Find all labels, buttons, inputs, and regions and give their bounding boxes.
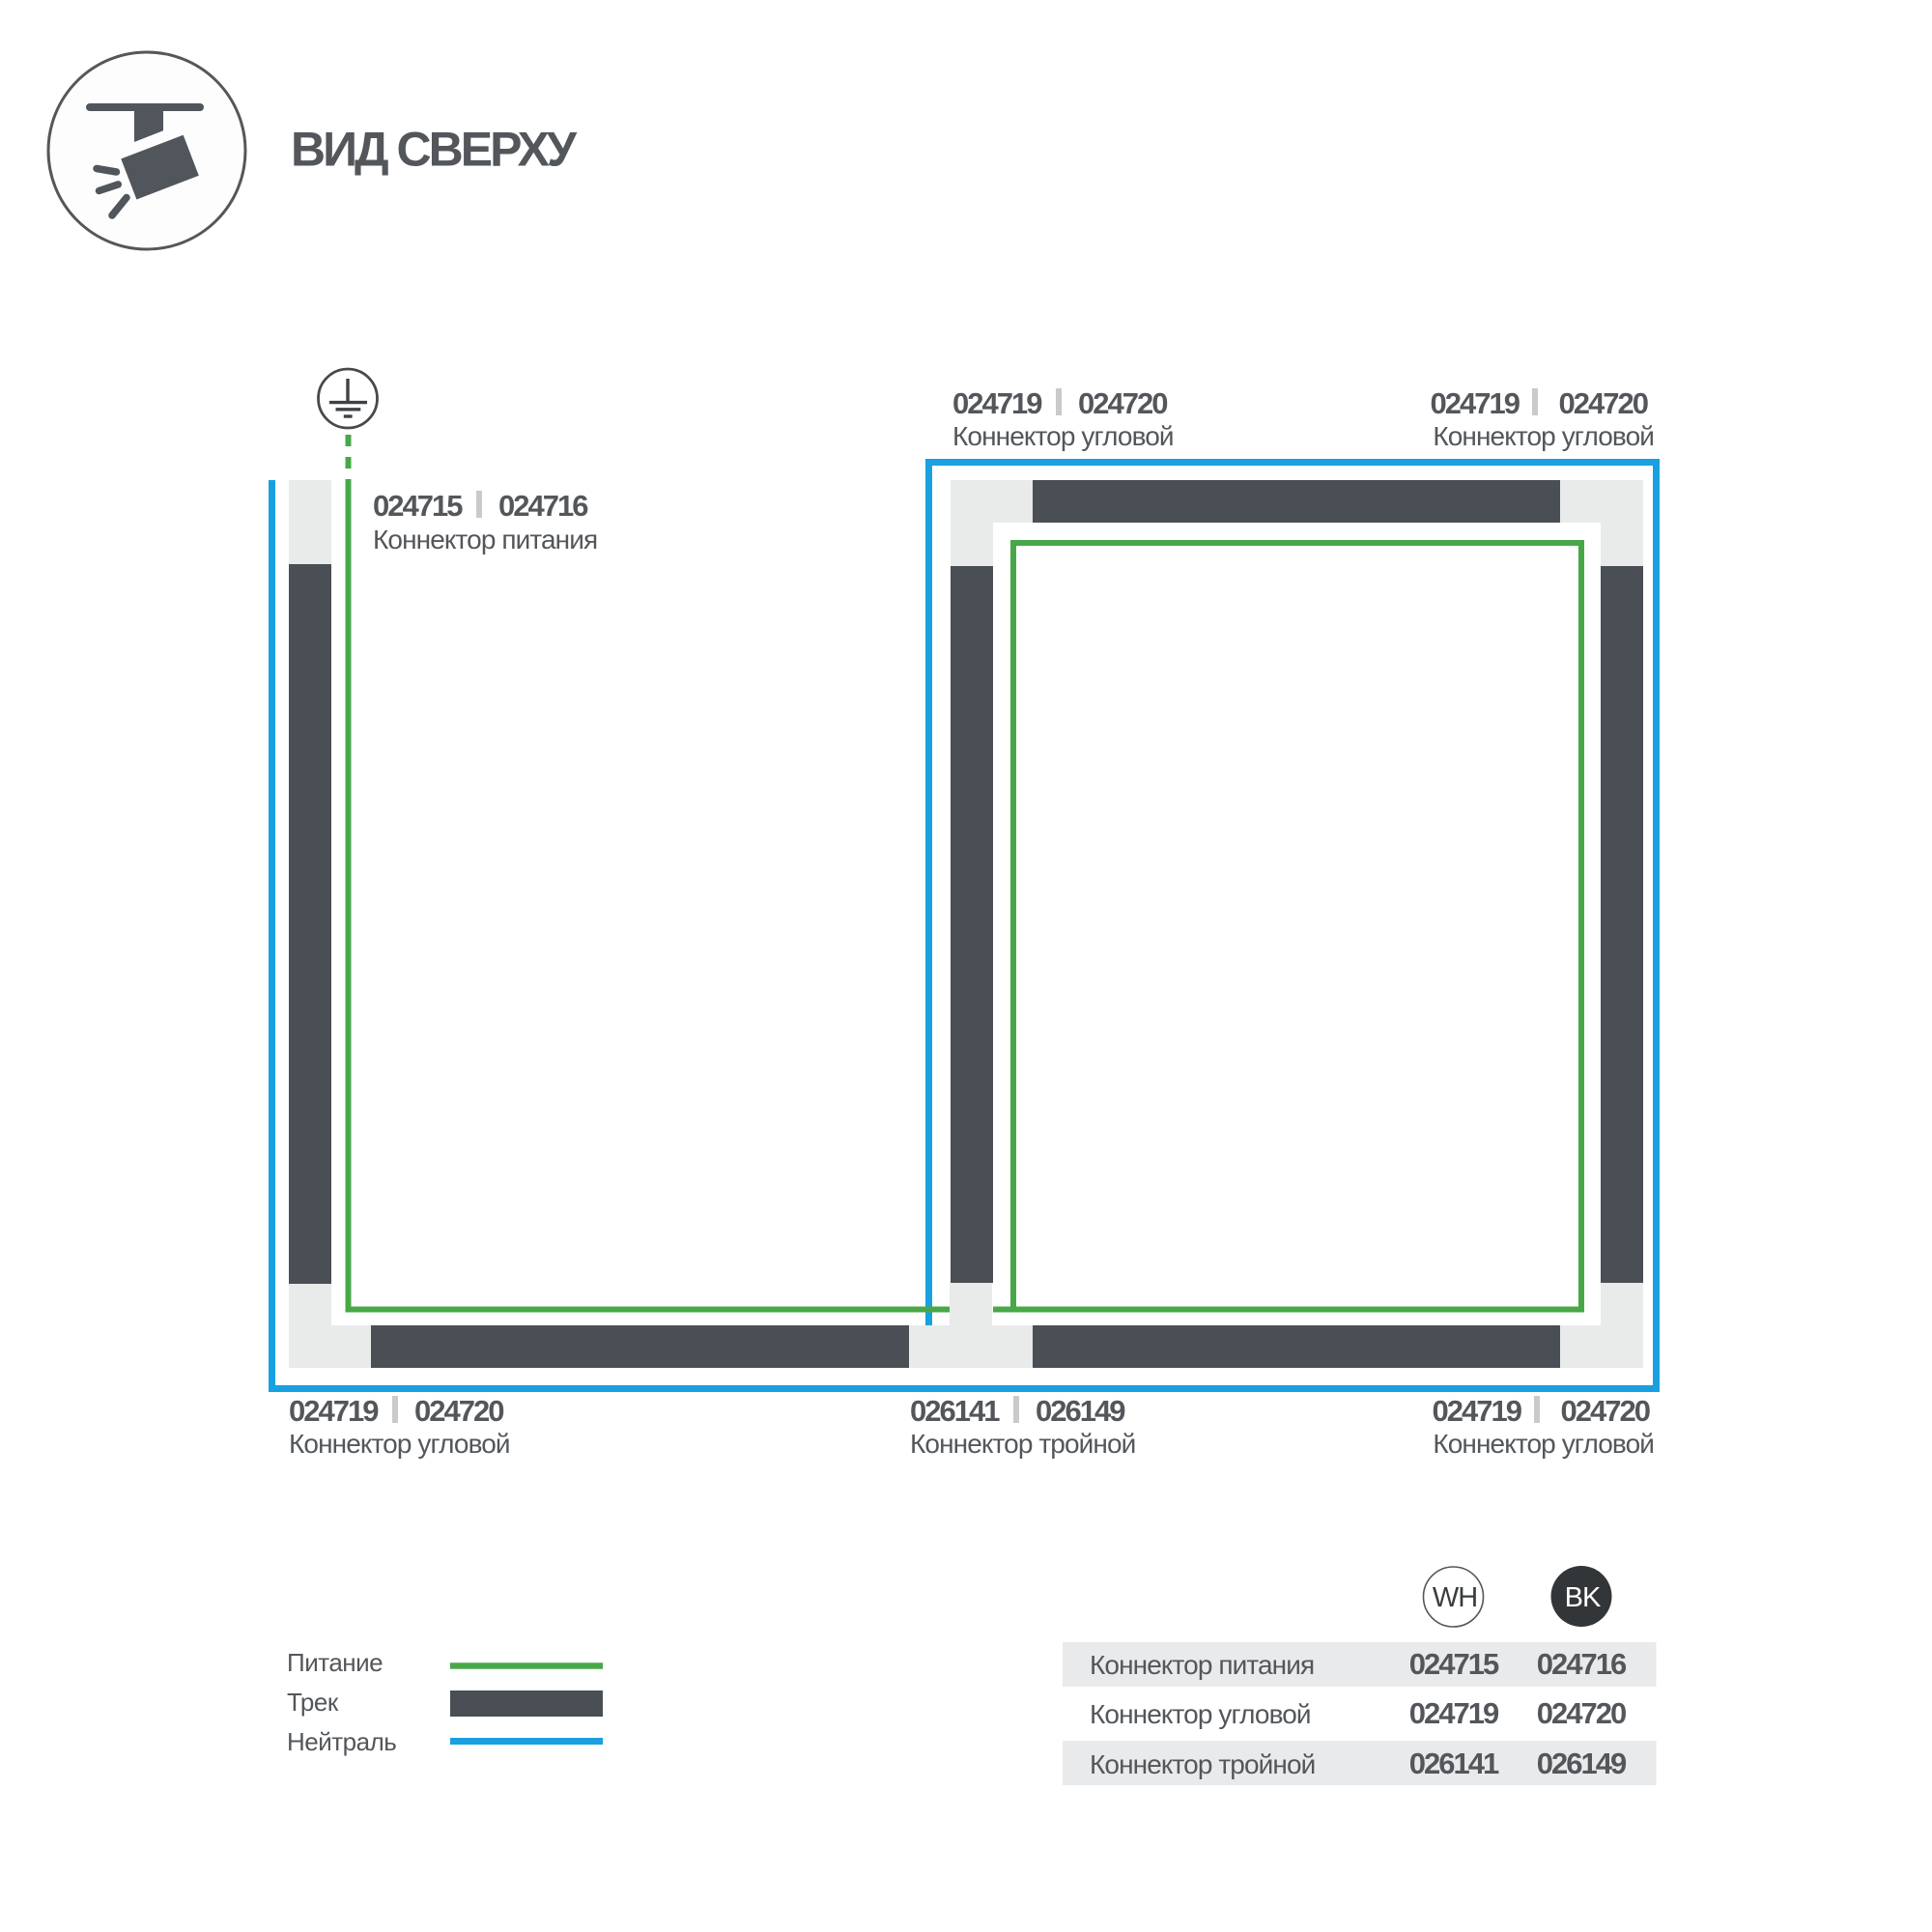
svg-text:024716: 024716 xyxy=(1537,1647,1627,1681)
svg-text:026141: 026141 xyxy=(910,1394,1000,1428)
svg-text:Коннектор питания: Коннектор питания xyxy=(373,525,597,554)
svg-text:BK: BK xyxy=(1565,1582,1602,1613)
svg-text:026149: 026149 xyxy=(1537,1747,1627,1780)
svg-text:Нейтраль: Нейтраль xyxy=(287,1727,396,1756)
svg-text:024720: 024720 xyxy=(1561,1394,1650,1428)
svg-text:Питание: Питание xyxy=(287,1648,383,1677)
svg-text:Трек: Трек xyxy=(287,1688,339,1717)
svg-text:Коннектор угловой: Коннектор угловой xyxy=(1433,421,1654,451)
svg-text:Коннектор угловой: Коннектор угловой xyxy=(1433,1429,1654,1459)
svg-text:ВИД СВЕРХУ: ВИД СВЕРХУ xyxy=(291,123,578,177)
svg-text:024720: 024720 xyxy=(1537,1696,1626,1730)
svg-text:024719: 024719 xyxy=(1433,1394,1522,1428)
svg-text:024720: 024720 xyxy=(414,1394,503,1428)
svg-text:024719: 024719 xyxy=(1431,386,1520,420)
svg-text:026141: 026141 xyxy=(1409,1747,1499,1780)
svg-text:024715: 024715 xyxy=(1409,1647,1499,1681)
svg-text:Коннектор тройной: Коннектор тройной xyxy=(1090,1749,1315,1779)
svg-text:Коннектор тройной: Коннектор тройной xyxy=(910,1429,1135,1459)
svg-text:024719: 024719 xyxy=(952,386,1042,420)
svg-text:WH: WH xyxy=(1433,1582,1477,1613)
svg-text:024716: 024716 xyxy=(498,489,588,523)
svg-text:026149: 026149 xyxy=(1036,1394,1125,1428)
svg-text:024720: 024720 xyxy=(1078,386,1167,420)
svg-text:024715: 024715 xyxy=(373,489,463,523)
svg-text:Коннектор питания: Коннектор питания xyxy=(1090,1650,1314,1680)
svg-text:024720: 024720 xyxy=(1559,386,1648,420)
svg-text:024719: 024719 xyxy=(289,1394,379,1428)
svg-text:Коннектор угловой: Коннектор угловой xyxy=(952,421,1174,451)
svg-text:Коннектор угловой: Коннектор угловой xyxy=(289,1429,510,1459)
svg-text:Коннектор угловой: Коннектор угловой xyxy=(1090,1699,1311,1729)
svg-text:024719: 024719 xyxy=(1409,1696,1499,1730)
